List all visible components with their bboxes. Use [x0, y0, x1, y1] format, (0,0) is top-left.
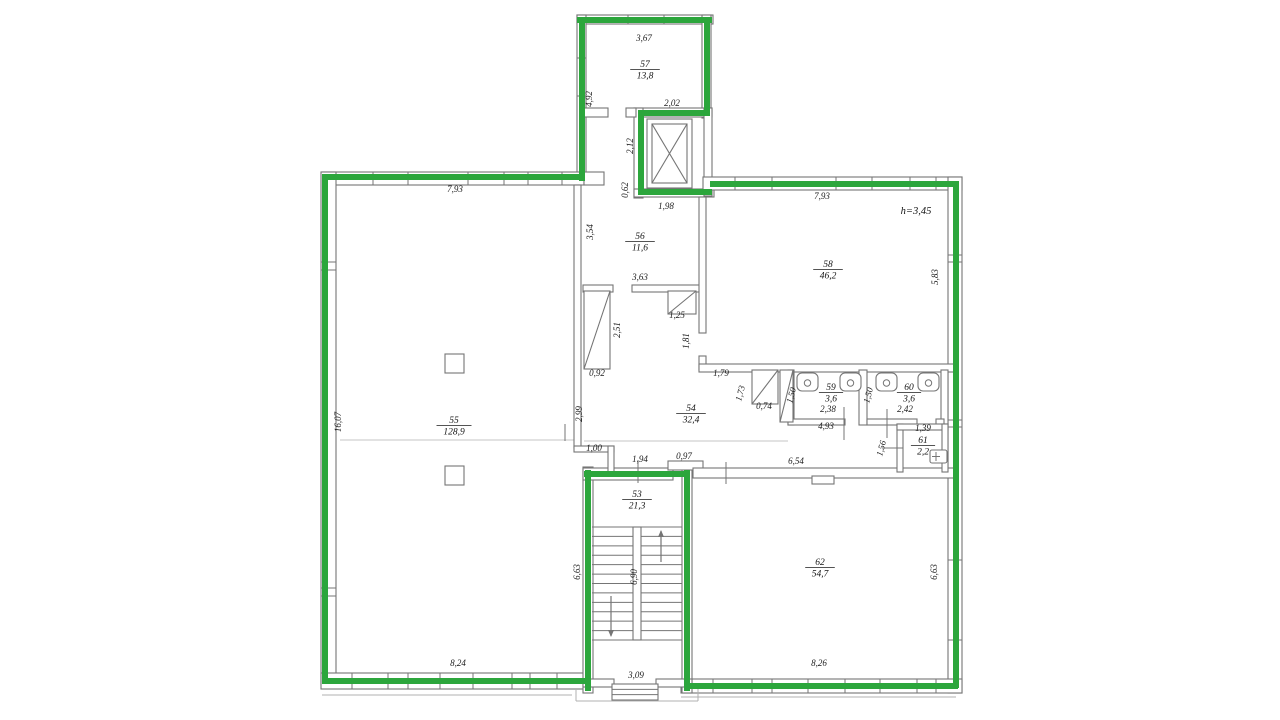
dimension-label: 1,81: [681, 333, 691, 349]
room-number: 53: [632, 490, 642, 500]
dimension-label: 1,94: [632, 454, 648, 464]
dimension-label: 3,09: [627, 670, 644, 680]
toilet-fixture-drain: [883, 380, 889, 386]
room-area: 54,7: [812, 570, 830, 580]
dimension-label: 7,93: [447, 184, 463, 194]
dimension-label: 2,38: [820, 404, 836, 414]
floor-plan-page: 3,674,922,022,120,621,983,543,637,937,93…: [0, 0, 1280, 720]
wall: [942, 424, 948, 472]
dimension-label: 4,92: [584, 91, 594, 107]
room-number: 59: [826, 383, 836, 393]
wall: [626, 108, 636, 117]
room-number: 61: [918, 436, 928, 446]
toilet-fixture-drain: [925, 380, 931, 386]
dimension-label: 8,26: [811, 658, 827, 668]
dimension-label: 7,93: [814, 191, 830, 201]
dimension-label: 5,83: [930, 269, 940, 285]
wall: [941, 370, 948, 425]
dimension-label: 16,07: [333, 411, 343, 432]
dimension-label: 1,00: [586, 443, 602, 453]
wall: [788, 419, 845, 425]
floor-plan: 3,674,922,022,120,621,983,543,637,937,93…: [0, 0, 1280, 720]
entrance-steps: [612, 684, 658, 700]
dimension-label: 2,42: [897, 404, 913, 414]
dimension-label: 8,24: [450, 658, 466, 668]
dimension-label: 3,67: [635, 33, 652, 43]
dimension-label: 1,56: [874, 439, 888, 457]
dimension-label: 2,99: [574, 406, 584, 422]
dimension-label: 3,63: [631, 272, 648, 282]
room-number: 55: [449, 416, 459, 426]
room-area: 11,6: [632, 244, 648, 254]
room-number: 56: [635, 232, 645, 242]
dimension-label: 1,98: [658, 201, 674, 211]
column: [445, 466, 464, 485]
room-area: 21,3: [629, 502, 646, 512]
direction-arrow-head: [608, 630, 614, 637]
dimension-label: 4,93: [818, 421, 834, 431]
room-area: 128,9: [443, 428, 465, 438]
dimension-label: 0,97: [676, 451, 692, 461]
dimension-label: 2,12: [625, 138, 635, 154]
room-number: 60: [904, 383, 914, 393]
dimension-label: 0,62: [620, 182, 630, 198]
toilet-fixture-drain: [847, 380, 853, 386]
wall: [699, 364, 956, 372]
room-number: 62: [815, 558, 825, 568]
dimension-label: 2,02: [664, 98, 680, 108]
dimension-label: 6,54: [788, 456, 804, 466]
dimension-label: 0,74: [756, 401, 772, 411]
wall: [699, 197, 706, 333]
room-area: 3,6: [824, 395, 837, 405]
height-note: h=3,45: [901, 206, 932, 217]
column: [445, 354, 464, 373]
dimension-label: 0,92: [589, 368, 605, 378]
room-number: 58: [823, 260, 833, 270]
dimension-label: 6,90: [629, 569, 639, 585]
dimension-label: 6,63: [929, 564, 939, 580]
wall: [812, 476, 834, 484]
room-number: 54: [686, 404, 696, 414]
dimension-label: 1,39: [915, 423, 931, 433]
room-number: 57: [640, 60, 651, 70]
dimension-label: 1,25: [669, 310, 685, 320]
room-area: 3,6: [902, 395, 915, 405]
dimension-label: 1,73: [733, 384, 747, 402]
dimension-label: 6,63: [572, 564, 582, 580]
room-area: 13,8: [637, 72, 654, 82]
room-area: 46,2: [820, 272, 837, 282]
room-area: 2,2: [917, 448, 929, 458]
direction-arrow-head: [658, 530, 664, 537]
room-area: 32,4: [682, 416, 700, 426]
dimension-label: 2,51: [612, 322, 622, 338]
toilet-fixture-drain: [804, 380, 810, 386]
wall: [584, 172, 604, 185]
dimension-label: 1,79: [713, 368, 729, 378]
dimension-label: 3,54: [585, 224, 595, 241]
wall: [584, 108, 608, 117]
